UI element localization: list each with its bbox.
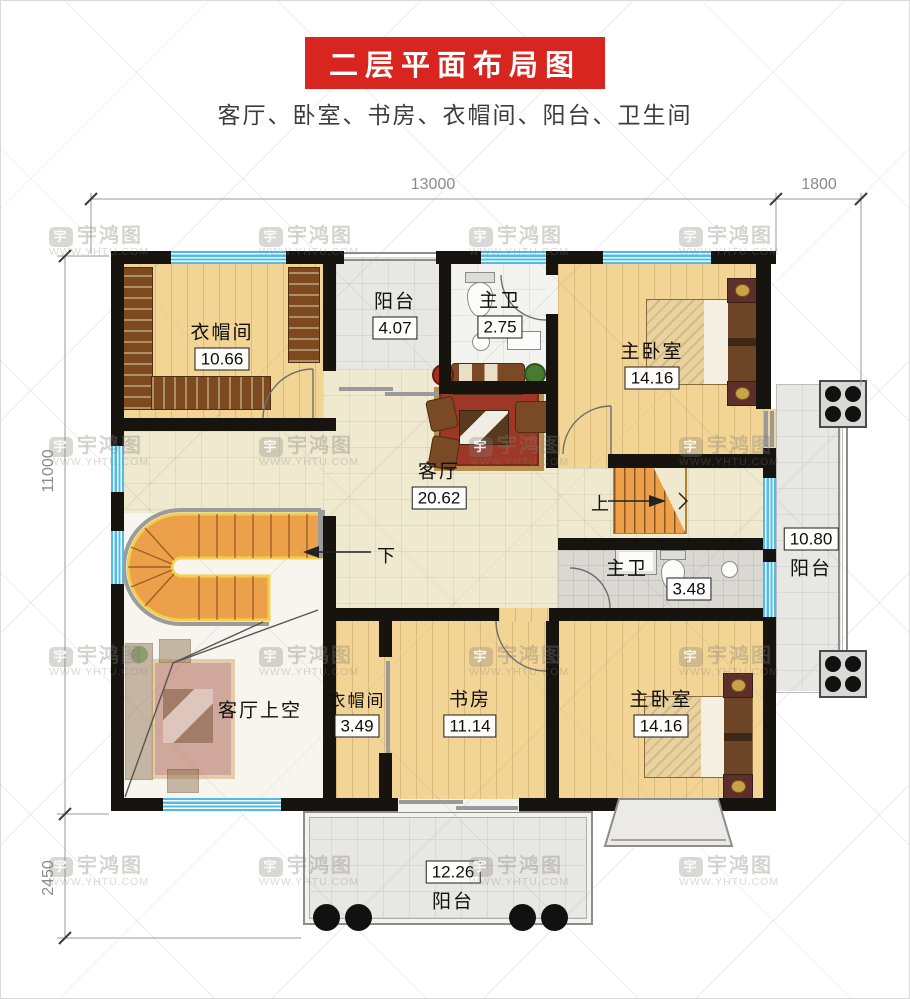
bed-sheet	[704, 300, 728, 384]
watermark-logo-icon: 宇	[679, 857, 703, 877]
column-cap	[819, 380, 867, 428]
wall-segment	[763, 617, 776, 811]
stair-down-label: 下	[377, 542, 395, 568]
dim-11000: 11000	[40, 449, 57, 492]
nightstand	[727, 278, 757, 303]
wall-segment	[558, 538, 764, 550]
floor-living-west	[123, 431, 336, 513]
label-bath-top: 主卫 2.75	[477, 286, 522, 339]
page-title: 二层平面布局图	[305, 37, 605, 89]
nightstand	[723, 774, 753, 799]
ghost-plant	[131, 646, 148, 663]
watermark-logo-icon: 宇	[49, 647, 73, 667]
floor-doorgap-balcony-right	[763, 409, 776, 449]
wall-segment	[549, 608, 776, 621]
label-bath-mid-name: 主卫	[606, 554, 648, 581]
wardrobe-bottom	[151, 376, 271, 410]
balcony-column	[509, 904, 536, 931]
wall-segment	[756, 251, 771, 409]
window	[763, 562, 776, 617]
bed-sheet	[701, 697, 725, 777]
bed-pillows	[728, 300, 757, 384]
wall-segment	[323, 251, 336, 371]
dim-1800: 1800	[801, 176, 837, 193]
window	[111, 531, 124, 584]
floor-balcony-door	[398, 799, 519, 812]
watermark-logo-icon: 宇	[49, 857, 73, 877]
watermark-logo-icon: 宇	[259, 857, 283, 877]
window	[171, 251, 286, 264]
ghost-table	[163, 689, 213, 743]
label-balcony-right: 10.80 阳台	[784, 528, 839, 581]
wardrobe-right	[288, 267, 320, 363]
label-balcony-top: 阳台 4.07	[372, 287, 417, 340]
balcony-column	[313, 904, 340, 931]
sofa-armchair	[515, 401, 549, 433]
wall-segment	[519, 798, 621, 811]
column-cap	[819, 650, 867, 698]
wall-segment	[608, 454, 776, 468]
label-cloak-top: 衣帽间 10.66	[190, 318, 253, 371]
wall-segment	[323, 516, 336, 799]
wall-segment	[281, 798, 398, 811]
floor-doorgap-study	[499, 608, 549, 622]
label-cloak-bottom: 衣帽间 3.49	[329, 687, 386, 738]
wall-segment	[123, 418, 336, 431]
balcony-top-railing	[339, 252, 439, 261]
dim-2450: 2450	[40, 860, 57, 896]
window	[111, 446, 124, 492]
wall-segment	[379, 621, 392, 657]
watermark-logo-icon: 宇	[469, 227, 493, 247]
label-bath-mid-area: 3.48	[666, 578, 711, 601]
watermark-logo-icon: 宇	[49, 227, 73, 247]
ghost-sofa	[125, 643, 153, 780]
wall-segment	[546, 621, 559, 799]
floor-doorgap-bath-mid	[558, 550, 570, 609]
wardrobe-left	[123, 267, 153, 410]
wall-segment	[439, 251, 451, 394]
label-living: 客厅 20.62	[412, 457, 467, 510]
bed-pillows	[724, 697, 752, 777]
label-balcony-bottom: 12.26 阳台	[426, 861, 481, 914]
watermark-logo-icon: 宇	[49, 437, 73, 457]
window	[763, 478, 776, 549]
floor-plan-page: 二层平面布局图 客厅、卧室、书房、衣帽间、阳台、卫生间	[0, 0, 910, 999]
ghost-chair	[167, 769, 199, 793]
window	[603, 251, 711, 264]
watermark: 宇宇鸿图WWW.YHTU.COM	[679, 856, 779, 888]
ghost-chair	[159, 639, 191, 663]
label-master-top: 主卧室 14.16	[620, 337, 683, 390]
balcony-right-railing	[838, 425, 848, 651]
window	[481, 251, 546, 264]
wall-segment	[323, 608, 499, 621]
floor-doorgap-bath-top	[546, 275, 558, 315]
wall-segment	[546, 314, 558, 468]
nightstand	[727, 381, 757, 406]
page-subtitle: 客厅、卧室、书房、衣帽间、阳台、卫生间	[218, 96, 693, 130]
balcony-column	[541, 904, 568, 931]
watermark-logo-icon: 宇	[679, 227, 703, 247]
window	[163, 798, 281, 811]
nightstand	[723, 673, 753, 698]
bay-window	[605, 799, 732, 846]
wall-segment	[546, 251, 558, 275]
watermark-logo-icon: 宇	[259, 227, 283, 247]
label-living-void: 客厅上空	[218, 696, 302, 723]
label-master-bottom: 主卧室 14.16	[629, 685, 692, 738]
wall-segment	[763, 549, 776, 562]
wall-segment	[111, 492, 124, 531]
label-study: 书房 11.14	[443, 685, 496, 738]
shower-drain	[721, 561, 738, 578]
watermark: 宇宇鸿图WWW.YHTU.COM	[49, 856, 149, 888]
wall-segment	[379, 753, 392, 799]
stair-up-label: 上	[591, 490, 609, 516]
wall-segment	[111, 798, 163, 811]
wall-segment	[111, 251, 124, 446]
balcony-column	[345, 904, 372, 931]
wall-segment	[111, 584, 124, 811]
coffee-table	[459, 410, 509, 445]
wall-segment	[439, 381, 558, 394]
stair-down-curved	[121, 506, 336, 631]
floor-doorgap-master-top	[558, 454, 608, 469]
dim-13000: 13000	[411, 176, 456, 193]
